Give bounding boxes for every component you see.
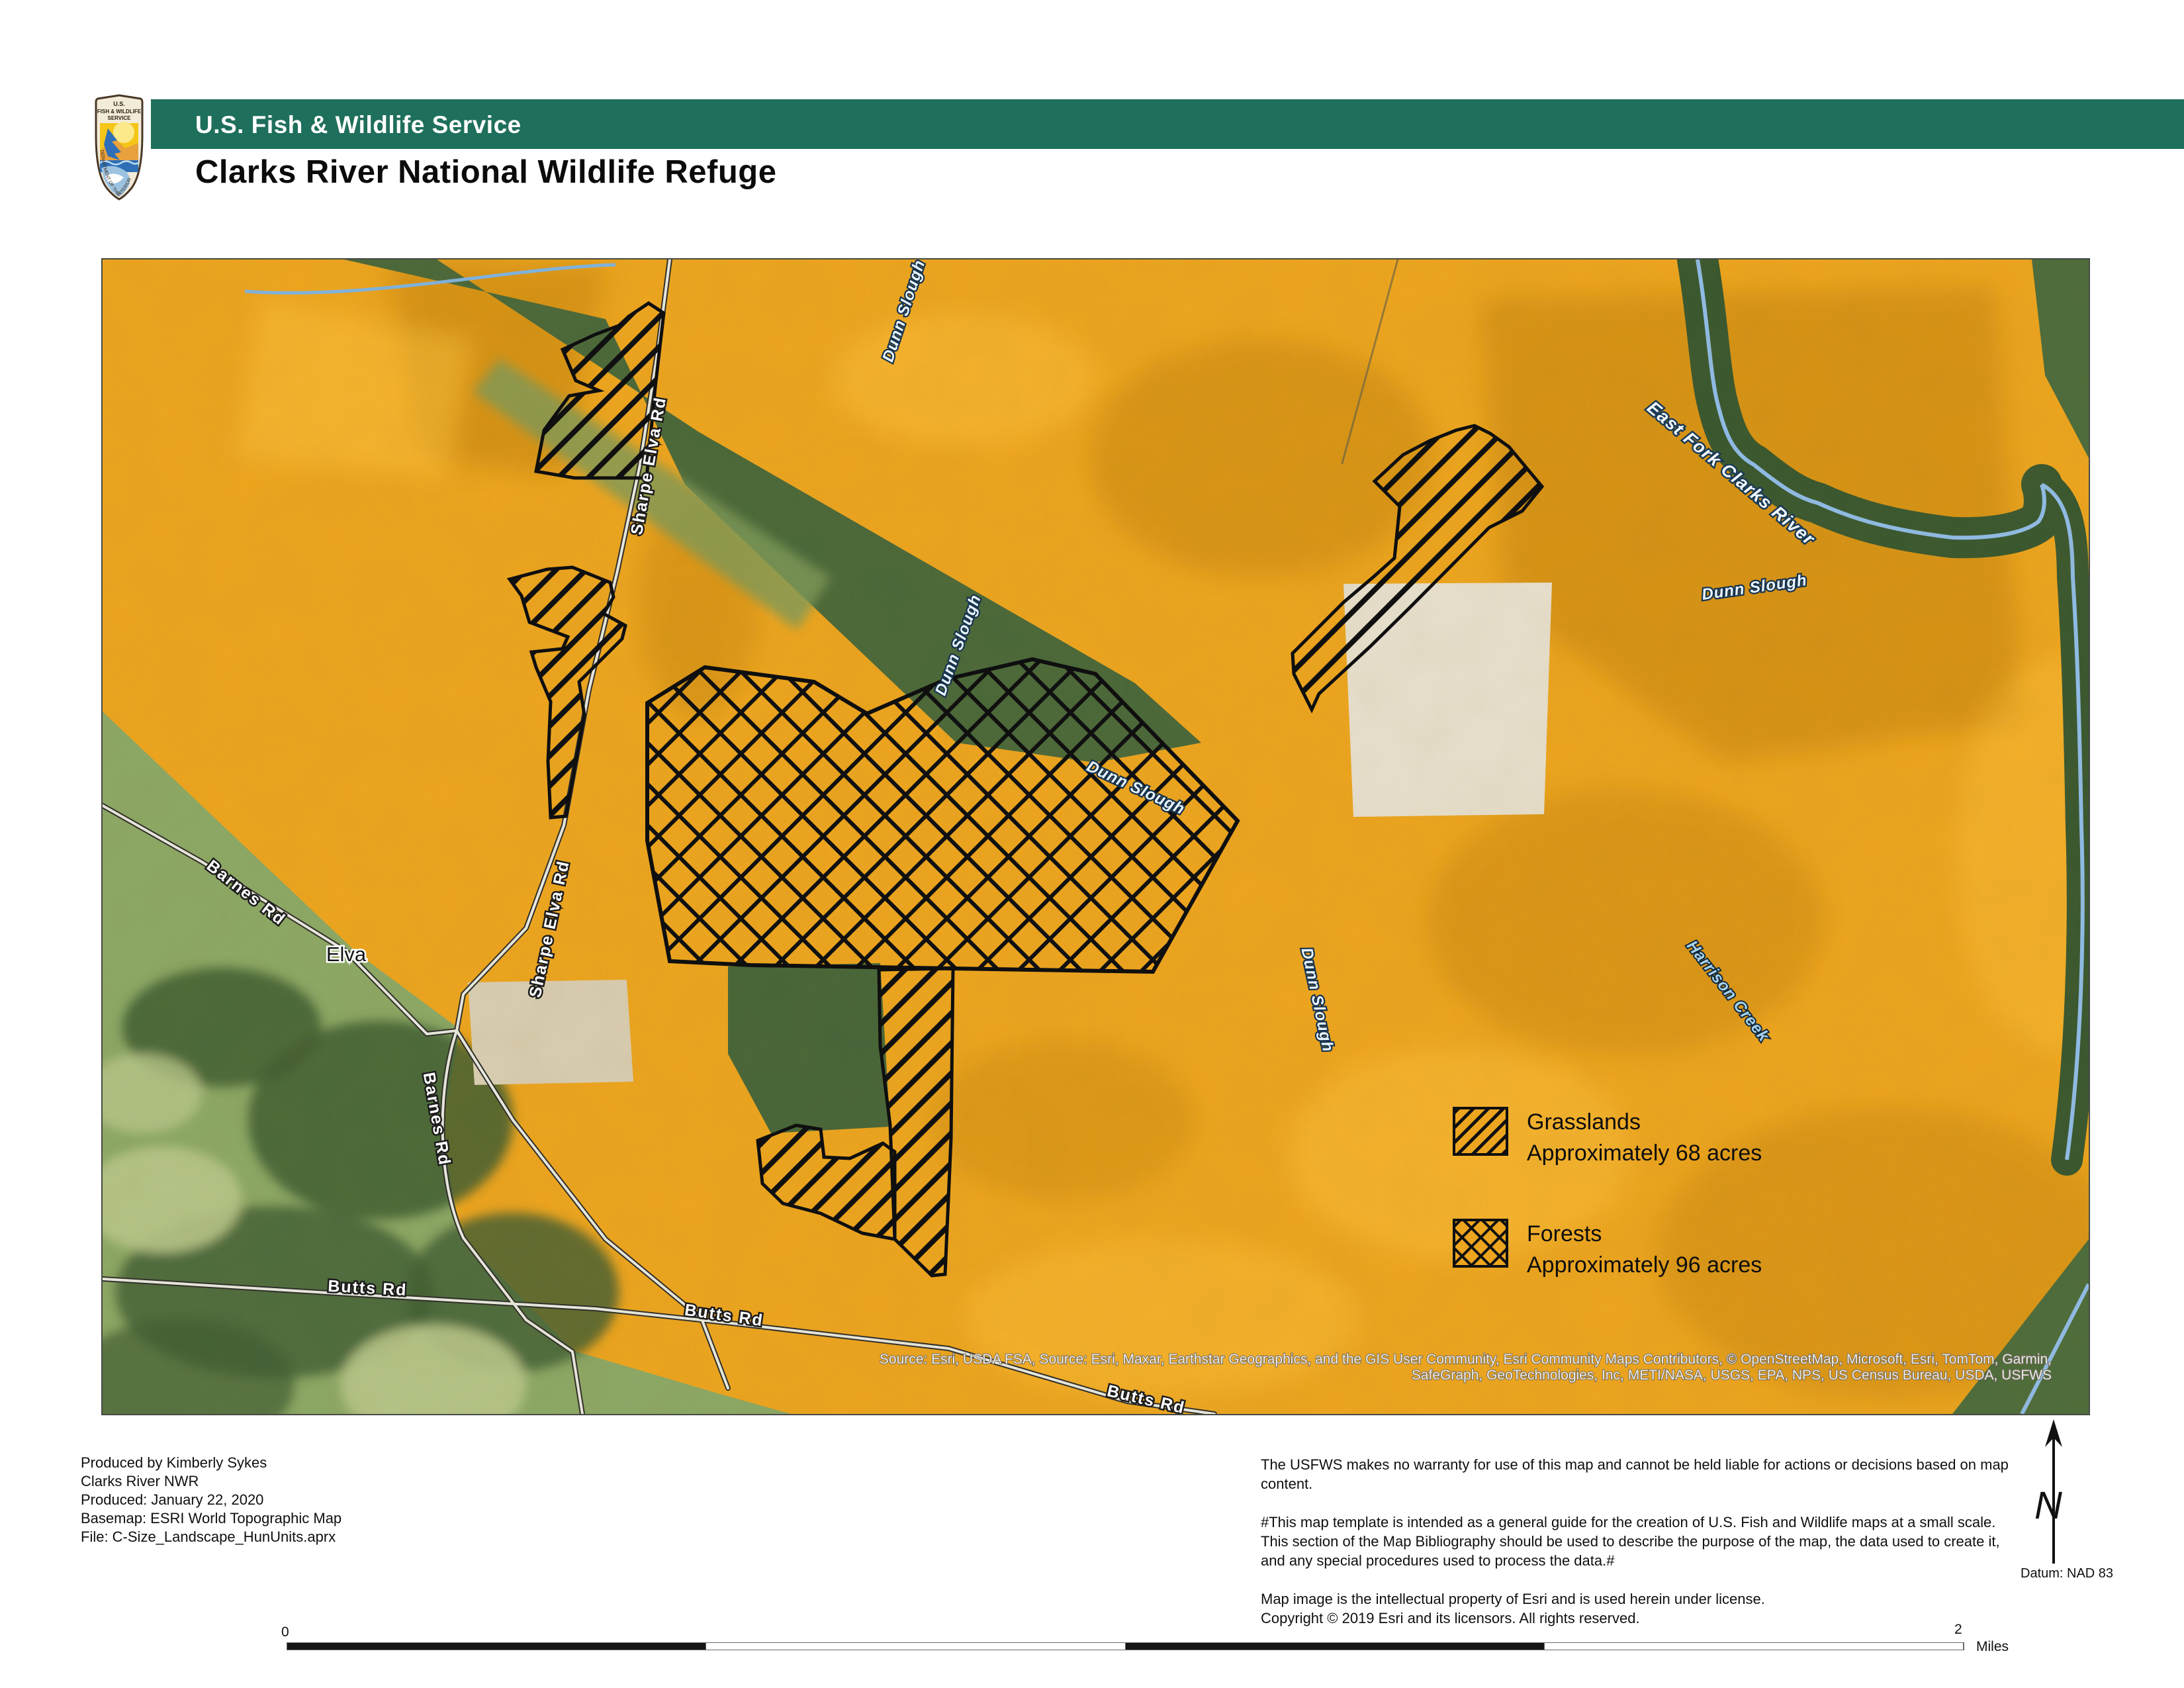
footer-left-line2: Clarks River NWR — [81, 1472, 341, 1491]
scale-segment-4 — [1544, 1643, 1964, 1650]
footer-production-notes: Produced by Kimberly Sykes Clarks River … — [81, 1454, 341, 1546]
logo-line2: FISH & WILDLIFE — [97, 109, 142, 115]
disclaimer-paragraph3-line2: Copyright © 2019 Esri and its licensors.… — [1261, 1609, 2028, 1628]
spacer — [1261, 1570, 2028, 1589]
logo-line3: SERVICE — [108, 115, 132, 121]
legend-entry-grasslands: Grasslands Approximately 68 acres — [1453, 1107, 1762, 1169]
spacer — [1261, 1493, 2028, 1513]
usfws-logo-icon: U.S. FISH & WILDLIFE SERVICE DEPARTMENT … — [95, 94, 144, 201]
north-arrow-letter: N — [2034, 1484, 2062, 1527]
disclaimer-paragraph3-line1: Map image is the intellectual property o… — [1261, 1589, 2028, 1609]
map-legend: Grasslands Approximately 68 acres Forest… — [1453, 1107, 1916, 1292]
agency-banner-text: U.S. Fish & Wildlife Service — [195, 99, 522, 149]
disclaimer-paragraph2-line1: #This map template is intended as a gene… — [1261, 1513, 2028, 1532]
north-arrow-icon: N — [2030, 1418, 2079, 1568]
datum-note: Datum: NAD 83 — [2021, 1566, 2113, 1581]
agency-banner: U.S. Fish & Wildlife Service — [151, 99, 2184, 149]
disclaimer-paragraph2-line3: and any special procedures used to proce… — [1261, 1551, 2028, 1570]
place-label-elva: Elva — [326, 943, 367, 966]
grasslands-hatch-swatch-icon — [1453, 1107, 1508, 1156]
scale-segment-1 — [287, 1643, 705, 1650]
disclaimer-paragraph1: The USFWS makes no warranty for use of t… — [1261, 1455, 2028, 1493]
scale-segment-2 — [705, 1643, 1125, 1650]
footer-left-line3: Produced: January 22, 2020 — [81, 1491, 341, 1509]
map-attribution-line1: Source: Esri, USDA FSA, Source: Esri, Ma… — [880, 1352, 2052, 1367]
footer-left-line1: Produced by Kimberly Sykes — [81, 1454, 341, 1472]
map-attribution-line2: SafeGraph, GeoTechnologies, Inc, METI/NA… — [1412, 1368, 2052, 1383]
disclaimer-paragraph2-line2: This section of the Map Bibliography sho… — [1261, 1532, 2028, 1551]
footer-left-line4: Basemap: ESRI World Topographic Map — [81, 1509, 341, 1528]
footer-left-line5: File: C-Size_Landscape_HunUnits.aprx — [81, 1528, 341, 1546]
scale-segment-3 — [1126, 1643, 1544, 1650]
scale-unit-label: Miles — [1976, 1639, 2009, 1655]
logo-line1: U.S. — [113, 101, 125, 107]
scale-start-label: 0 — [281, 1624, 289, 1640]
forests-hatch-swatch-icon — [1453, 1219, 1508, 1268]
legend-grasslands-detail: Approximately 68 acres — [1527, 1138, 1762, 1169]
scale-bar — [287, 1642, 1964, 1650]
legend-grasslands-name: Grasslands — [1527, 1107, 1762, 1138]
legend-forests-detail: Approximately 96 acres — [1527, 1250, 1762, 1281]
footer-disclaimer: The USFWS makes no warranty for use of t… — [1261, 1455, 2028, 1628]
legend-forests-name: Forests — [1527, 1219, 1762, 1250]
legend-entry-forests: Forests Approximately 96 acres — [1453, 1219, 1762, 1281]
page-title: Clarks River National Wildlife Refuge — [195, 154, 777, 191]
